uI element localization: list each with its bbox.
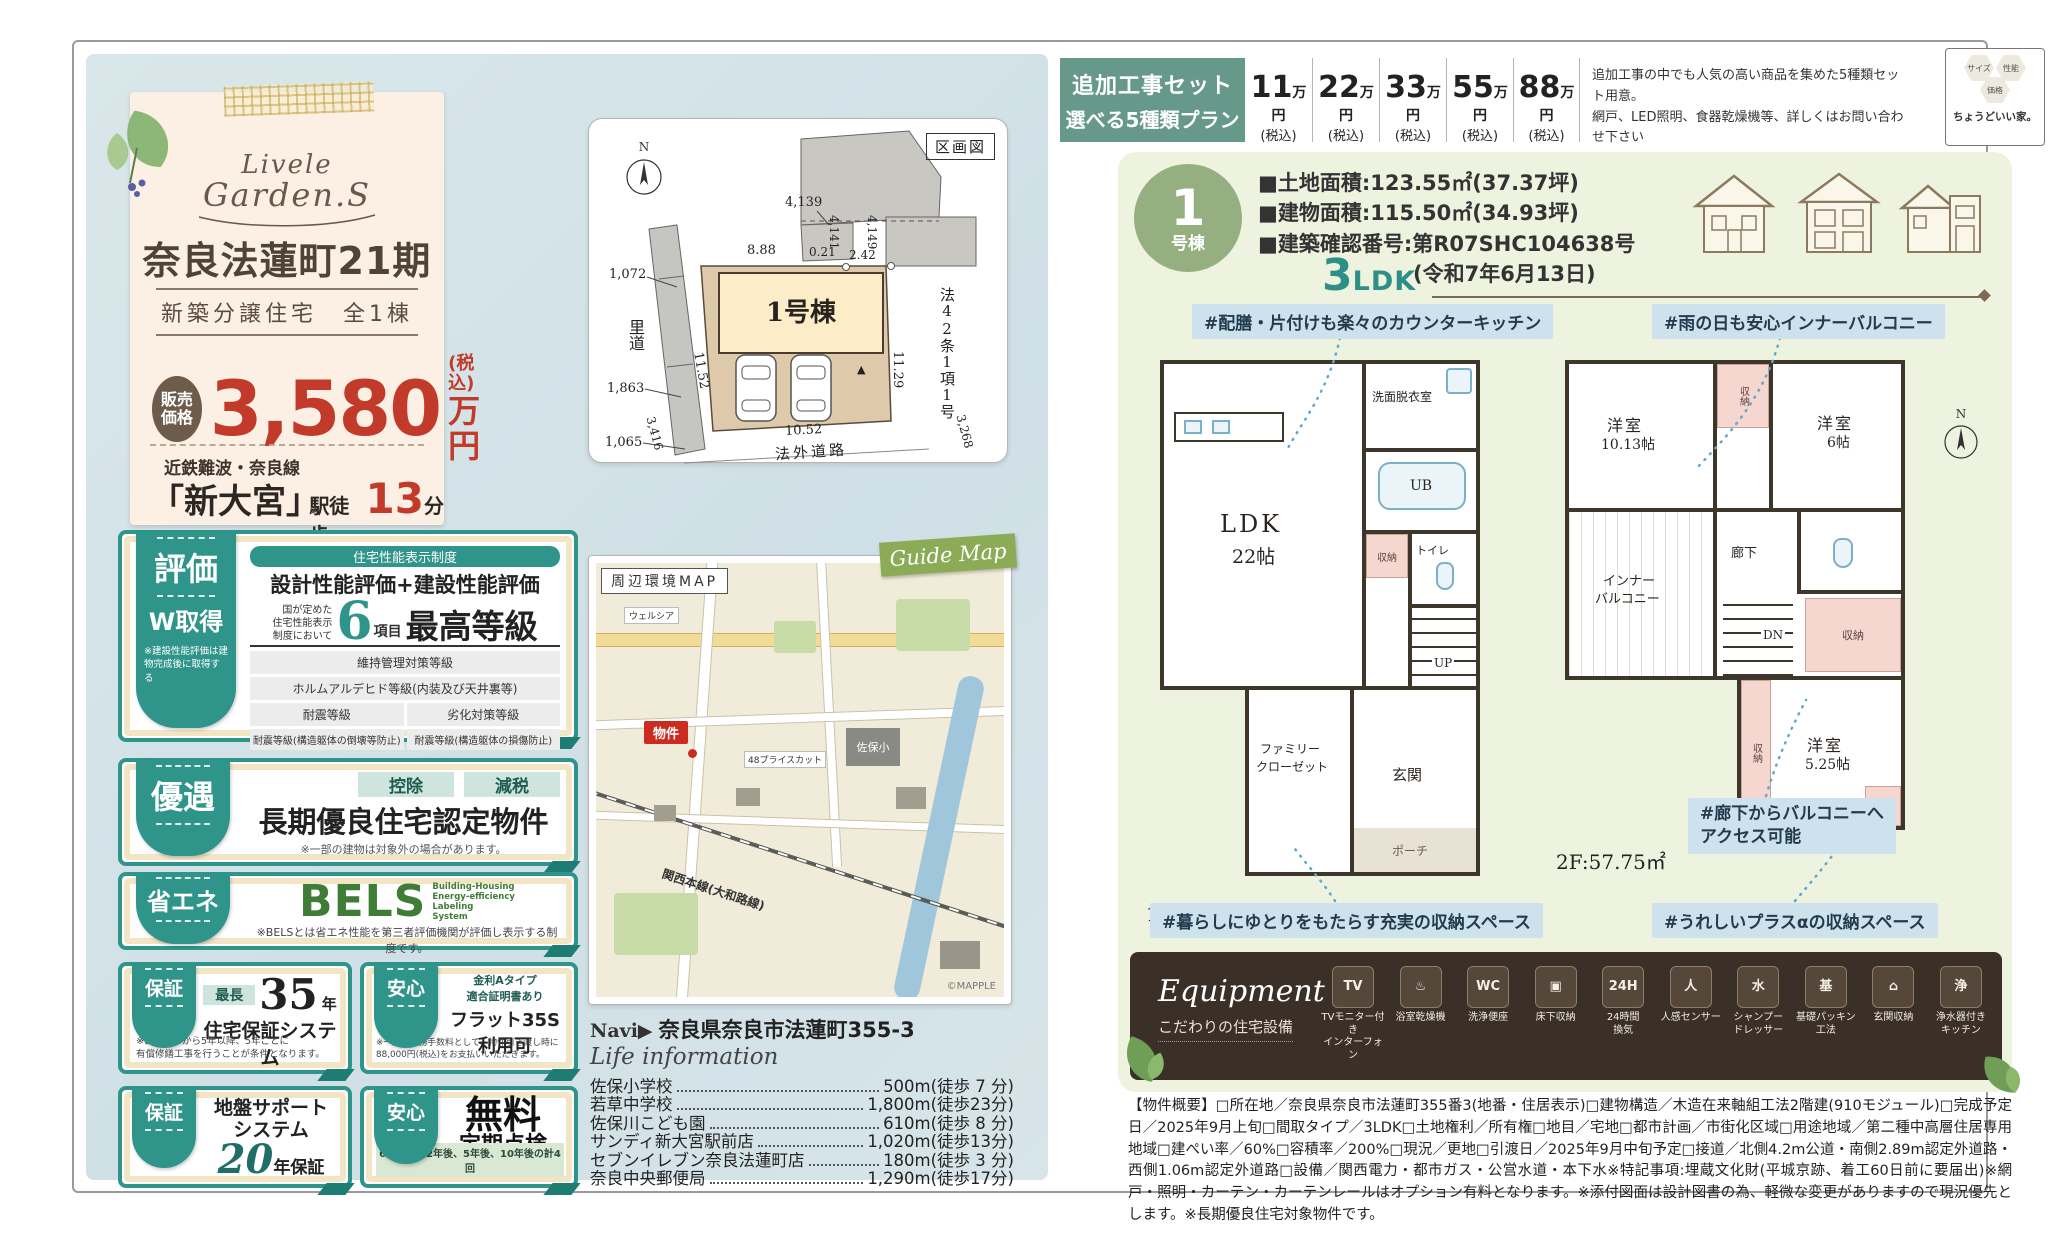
badge-ribbon-shouene: 省エネ <box>136 874 230 944</box>
unit-specs: ■土地面積:123.55㎡(37.37坪) ■建物面積:115.50㎡(34.9… <box>1258 168 1635 290</box>
ribbon-label: 省エネ <box>147 882 219 917</box>
dotted-leader <box>710 1127 880 1129</box>
water-purifier-icon: 浄 <box>1940 966 1982 1008</box>
leaf-decoration <box>1972 1046 2028 1102</box>
compass-icon-floorplan: N <box>1938 406 1984 466</box>
dim-1072: 1,072 <box>609 267 646 282</box>
life-name: 佐保川こども園 <box>590 1115 706 1133</box>
ribbon-label: 優遇 <box>151 772 215 818</box>
bath-dryer-icon: ♨ <box>1400 966 1442 1008</box>
tag-storage2: #うれしいプラスαの収納スペース <box>1652 903 1938 938</box>
perf-lead2: 住宅性能表示 <box>272 617 332 630</box>
jiban-suffix: 年保証 <box>273 1153 324 1178</box>
room-shuno: 収納 <box>1366 534 1408 578</box>
badge-card-yuuguu: 優遇 控除 減税 長期優良住宅認定物件 ※一部の建物は対象外の場合があります。 <box>118 758 578 866</box>
equipment-label: 基礎パッキン <box>1793 1012 1859 1025</box>
life-info-title: Life information <box>590 1044 778 1070</box>
sink-icon <box>1184 420 1202 434</box>
room-fcl-line2: クローゼット <box>1256 758 1328 775</box>
tag-hallway-line1: #廊下からバルコニーへ <box>1700 803 1884 826</box>
room-yo3: 洋室 <box>1807 732 1843 756</box>
car-icon <box>791 355 831 421</box>
life-info-row: 佐保小学校500m(徒歩 7 分) <box>590 1078 1014 1096</box>
perf-title: 設計性能評価+建設性能評価 <box>250 569 560 599</box>
equipment-label: TVモニター付き <box>1320 1012 1386 1037</box>
room-yo1-size: 10.13帖 <box>1601 434 1655 454</box>
spec-building-area: ■建物面積:115.50㎡(34.93坪) <box>1258 198 1635 228</box>
property-outline: 【物件概要】□所在地／奈良県奈良市法蓮町355番3(地番・住居表示)□建物構造／… <box>1128 1096 2012 1227</box>
bels-sub1: Building-Housing <box>432 882 515 892</box>
flat35s-pill2: 適合証明書あり <box>442 988 568 1004</box>
perf-cell3: 耐震等級(構造躯体の倒壊等防止) <box>250 729 404 750</box>
entrance-triangle: ▲ <box>857 363 865 376</box>
property-marker-dot <box>688 749 697 758</box>
equipment-label: シャンプー <box>1725 1012 1791 1025</box>
stairs-up-label: UP <box>1432 656 1454 670</box>
hoshou35-note2: 有償修繕工事を行うことが条件となります。 <box>136 1049 340 1062</box>
ventilation-icon: 24H <box>1602 966 1644 1008</box>
unit-number-circle: 1 号棟 <box>1134 164 1242 272</box>
area-2f: 2F:57.75㎡ <box>1556 846 1666 875</box>
jiban-num: 20 <box>218 1142 274 1178</box>
badge-card-flat35s: 安心 金利Aタイプ 適合証明書あり フラット35S利用可 ※一連の事務手数料とし… <box>360 962 578 1074</box>
yuuguu-content: 控除 減税 長期優良住宅認定物件 ※一部の建物は対象外の場合があります。 <box>247 772 560 857</box>
tag-hallway: #廊下からバルコニーへ アクセス可能 <box>1688 798 1896 854</box>
perf-header: 住宅性能表示制度 <box>250 546 560 567</box>
navi-address: 奈良県奈良市法蓮町355-3 <box>659 1014 915 1044</box>
perf-lead3: 制度において <box>272 630 332 643</box>
motion-sensor-icon: 人 <box>1670 966 1712 1008</box>
flyer-page: Livele Garden.S 奈良法蓮町21期 新築分譲住宅 全1棟 販売 価… <box>0 0 2056 1235</box>
ribbon-label: 保証 <box>145 1098 183 1125</box>
equipment-item: WC洗浄便座 <box>1455 966 1521 1062</box>
life-value: 500m(徒歩 7 分) <box>883 1078 1014 1096</box>
walk-suffix: 分 <box>424 490 444 519</box>
leaf-decoration <box>1112 1030 1172 1090</box>
addon-plan-line2: 選べる5種類プラン <box>1066 104 1240 133</box>
equipment-subtitle: こだわりの住宅設備 <box>1158 1016 1293 1042</box>
life-value: 1,020m(徒歩13分) <box>867 1133 1014 1151</box>
equipment-label: インターフォン <box>1320 1037 1386 1062</box>
life-value: 1,290m(徒歩17分) <box>867 1170 1014 1188</box>
dotted-leader <box>710 1182 864 1184</box>
dim-4141: 4,141 <box>827 215 841 249</box>
dotted-leader <box>677 1090 880 1092</box>
guide-map-canvas: 関西本線(大和路線) 佐保小 ウェルシア 48プライスカット 物件 ©MAPPL… <box>596 563 1004 997</box>
room-yo1: 洋室 <box>1607 412 1643 436</box>
floorplan-2f: 収納 洋室 10.13帖 洋室 6帖 インナー バルコニー 廊下 DN 収納 収… <box>1565 360 1905 830</box>
room-toilet: トイレ <box>1416 542 1449 558</box>
life-name: サンディ新大宮駅前店 <box>590 1133 754 1151</box>
ribbon-label: 評価 <box>154 544 218 590</box>
perf-big-suffix: 項目 <box>374 621 402 641</box>
dim-242: 2.42 <box>849 248 876 262</box>
ldk-num: 3 <box>1322 250 1353 301</box>
shampoo-dresser-icon: 水 <box>1737 966 1779 1008</box>
tape-decoration <box>224 81 375 116</box>
unit-layout: 3 LDK <box>1322 250 1416 301</box>
ldk-suffix: LDK <box>1353 266 1417 297</box>
map-credit: ©MAPPLE <box>947 981 996 992</box>
map-building <box>940 941 980 969</box>
building-label: 1号棟 <box>766 298 837 328</box>
closet-2f-mid: 収納 <box>1805 598 1901 672</box>
life-value: 1,800m(徒歩23分) <box>867 1096 1014 1114</box>
price-cell: 11万円 (税込) <box>1245 58 1312 142</box>
badge-ribbon-hoshou2: 保証 <box>132 1088 196 1168</box>
room-porch: ポーチ <box>1392 842 1428 859</box>
equipment-item: 人人感センサー <box>1658 966 1724 1062</box>
compass-n: N <box>639 140 650 154</box>
flat35s-note2: 88,000円(税込)をお支払いいただきます。 <box>376 1050 568 1062</box>
decor-line <box>1432 296 1984 298</box>
map-store-label: 48プライスカット <box>744 751 826 768</box>
room-ub: UB <box>1410 478 1432 494</box>
equipment-label: 浴室乾燥機 <box>1388 1012 1454 1025</box>
life-info-row: 佐保川こども園610m(徒歩 8 分) <box>590 1115 1014 1133</box>
guide-map-corner-label: 周辺環境MAP <box>601 568 728 594</box>
dim-1065: 1,065 <box>605 435 642 450</box>
price-amount: 11 <box>1251 70 1293 105</box>
price-tax: (税込) <box>1313 125 1379 144</box>
room-ldk-size: 22帖 <box>1232 542 1275 569</box>
life-info-row: サンディ新大宮駅前店1,020m(徒歩13分) <box>590 1133 1014 1151</box>
price-badge-line1: 販売 <box>161 391 193 409</box>
equipment-label: 浄水器付き <box>1928 1012 1994 1025</box>
dotted-leader <box>677 1108 864 1110</box>
room-senmen: 洗面脱衣室 <box>1372 388 1432 405</box>
badge-ribbon-hoshou: 保証 <box>132 964 196 1048</box>
life-info-row: セブンイレブン奈良法蓮町店180m(徒歩 3 分) <box>590 1152 1014 1170</box>
addon-price-row: 11万円 (税込) 22万円 (税込) 33万円 (税込) 55万円 (税込) … <box>1245 58 1580 142</box>
floorplan-1f: 洗面脱衣室 UB 収納 トイレ UP LDK 22帖 ファミリー クローゼット … <box>1160 360 1480 880</box>
stove-icon <box>1212 420 1230 434</box>
equipment-label: キッチン <box>1928 1025 1994 1038</box>
compass-n2: N <box>1956 407 1967 421</box>
hoshou35-num: 35 <box>259 974 317 1016</box>
addon-plan-line1: 追加工事セット <box>1072 68 1233 100</box>
room-ldk: LDK <box>1220 510 1282 538</box>
price-value: 3,580 <box>210 371 440 447</box>
walk-minutes: 13 <box>366 474 424 523</box>
jiban-content: 地盤サポート システム 20 年保証 <box>202 1098 340 1178</box>
toilet-icon-2f <box>1833 538 1853 568</box>
car-icon <box>736 355 776 421</box>
room-inner-line2: バルコニー <box>1595 588 1660 607</box>
badge-card-bels: 省エネ BELS Building-Housing Energy-efficie… <box>118 872 578 950</box>
equipment-item: 水シャンプードレッサー <box>1725 966 1791 1062</box>
house-illustration <box>1690 168 1778 260</box>
property-subtitle: 新築分譲住宅 全1棟 <box>156 288 418 336</box>
dotted-leader <box>758 1145 863 1147</box>
equipment-label: ドレッサー <box>1725 1025 1791 1038</box>
dim-1129: 11.29 <box>890 351 905 388</box>
leaf-decoration <box>92 88 212 208</box>
equipment-item: ⌂玄関収納 <box>1860 966 1926 1062</box>
ribbon-note: ※建設性能評価は建物完成後に取得する <box>136 637 236 685</box>
compass-icon <box>627 160 661 194</box>
equipment-label: 工法 <box>1793 1025 1859 1038</box>
life-name: 佐保小学校 <box>590 1078 673 1096</box>
bels-logo: BELS <box>299 880 426 924</box>
brand-box: サイズ 性能 価格 ちょうどいい家。 <box>1945 48 2045 146</box>
pill-saichou: 最長 <box>203 985 255 1005</box>
brand-tagline: ちょうどいい家。 <box>1946 109 2044 124</box>
ribbon-sub: W取得 <box>149 602 223 637</box>
equipment-item: ▣床下収納 <box>1523 966 1589 1062</box>
equipment-item: 24H24時間換気 <box>1590 966 1656 1062</box>
map-building <box>736 788 760 806</box>
guide-map-card: 関西本線(大和路線) 佐保小 ウェルシア 48プライスカット 物件 ©MAPPL… <box>588 555 1012 1005</box>
equipment-item: ♨浴室乾燥機 <box>1388 966 1454 1062</box>
tag-kitchen: #配膳・片付けも楽々のカウンターキッチン <box>1192 304 1553 339</box>
badge-card-hyouka: 評価 W取得 ※建設性能評価は建物完成後に取得する 住宅性能表示制度 設計性能評… <box>118 530 578 742</box>
tag-balcony: #雨の日も安心インナーバルコニー <box>1652 304 1945 339</box>
property-title: 奈良法蓮町21期 <box>130 230 444 285</box>
pill-koujo: 控除 <box>358 772 454 797</box>
equipment-label: 人感センサー <box>1658 1012 1724 1025</box>
map-building <box>654 805 676 821</box>
bels-sub3: Labeling <box>432 902 515 912</box>
price-badge-line2: 価格 <box>161 409 193 427</box>
perf-lead1: 国が定めた <box>272 604 332 617</box>
floor-storage-icon: ▣ <box>1535 966 1577 1008</box>
card-fold <box>317 1183 354 1195</box>
addon-note: 追加工事の中でも人気の高い商品を集めた5種類セット用意。 網戸、LED照明、食器… <box>1592 66 1910 149</box>
price-cell: 88万円 (税込) <box>1513 58 1580 142</box>
bels-sub4: System <box>432 912 515 922</box>
equipment-item: 基基礎パッキン工法 <box>1793 966 1859 1062</box>
addon-note-line2: 網戸、LED照明、食器乾燥機等、詳しくはお問い合わせ下さい <box>1592 108 1910 150</box>
spec-land-area: ■土地面積:123.55㎡(37.37坪) <box>1258 168 1635 198</box>
foundation-packing-icon: 基 <box>1805 966 1847 1008</box>
bels-note: ※BELSとは省エネ性能を第三者評価機関が評価し表示する制度です。 <box>252 924 562 956</box>
equipment-label: 24時間 <box>1590 1012 1656 1025</box>
life-name: セブンイレブン奈良法蓮町店 <box>590 1152 805 1170</box>
dim-1863: 1,863 <box>607 381 644 396</box>
map-green-area <box>774 621 816 653</box>
yuuguu-note: ※一部の建物は対象外の場合があります。 <box>247 841 560 857</box>
bels-content: BELS Building-Housing Energy-efficiency … <box>252 880 562 956</box>
map-green-area <box>614 893 698 955</box>
perf-cell1: 耐震等級 <box>250 703 404 726</box>
washer-icon <box>1446 368 1472 394</box>
room-rouka: 廊下 <box>1731 542 1757 561</box>
price-tax: (税込) <box>1447 125 1513 144</box>
dim-4149: 4,149 <box>865 215 879 249</box>
hoshou35-year: 年 <box>322 993 337 1014</box>
price-cell: 33万円 (税込) <box>1379 58 1446 142</box>
room-yo3-size: 5.25帖 <box>1805 754 1850 774</box>
property-marker: 物件 <box>644 721 688 744</box>
badge-card-hoshou35: 保証 最長 35 年 住宅保証システム ※お引渡しから5年以降、5年ごとに 有償… <box>118 962 352 1074</box>
bels-sub2: Energy-efficiency <box>432 892 515 902</box>
map-building <box>896 787 926 809</box>
life-info-row: 若草中学校1,800m(徒歩23分) <box>590 1096 1014 1114</box>
perf-cell4: 耐震等級(構造躯体の損傷防止) <box>407 729 561 750</box>
map-school-building: 佐保小 <box>846 728 900 766</box>
badge-card-jiban: 保証 地盤サポート システム 20 年保証 <box>118 1086 352 1188</box>
equipment-label: 床下収納 <box>1523 1012 1589 1025</box>
dim-1052: 10.52 <box>785 422 823 439</box>
navi-row: Navi▶ 奈良県奈良市法蓮町355-3 <box>590 1014 915 1044</box>
addon-plan-box: 追加工事セット 選べる5種類プラン <box>1060 58 1245 142</box>
dim-888: 8.88 <box>747 243 776 258</box>
card-fold <box>543 1183 580 1195</box>
entrance-storage-icon: ⌂ <box>1872 966 1914 1008</box>
kitchen-counter <box>1174 412 1284 442</box>
price-cell: 22万円 (税込) <box>1312 58 1379 142</box>
neighbor-lot-upper <box>801 131 941 225</box>
addon-note-line1: 追加工事の中でも人気の高い商品を集めた5種類セット用意。 <box>1592 66 1910 108</box>
price-cell: 55万円 (税込) <box>1446 58 1513 142</box>
brand-hexagons-row2: 価格 <box>1946 77 2044 103</box>
equipment-label: 換気 <box>1590 1025 1656 1038</box>
equipment-items: TVTVモニター付きインターフォン ♨浴室乾燥機 WC洗浄便座 ▣床下収納 24… <box>1320 966 1994 1062</box>
stairs-1f <box>1412 608 1480 690</box>
station-name: 「新大宮」 <box>150 474 309 523</box>
price-badge: 販売 価格 <box>152 376 202 442</box>
tag-hallway-line2: アクセス可能 <box>1700 826 1884 849</box>
map-welcia-label: ウェルシア <box>624 607 679 624</box>
life-value: 610m(徒歩 8 分) <box>883 1115 1014 1133</box>
equipment-label: 玄関収納 <box>1860 1012 1926 1025</box>
equipment-banner: Equipment こだわりの住宅設備 TVTVモニター付きインターフォン ♨浴… <box>1130 952 2002 1080</box>
room-yo2: 洋室 <box>1817 410 1853 434</box>
room-genkan: 玄関 <box>1392 764 1422 785</box>
badge-card-tenken: 安心 無料 定期点検 6ヶ月後、2年後、5年後、10年後の計4回 <box>360 1086 578 1188</box>
plot-map-title: 区画図 <box>926 133 995 160</box>
equipment-title: Equipment <box>1158 974 1325 1009</box>
price-amount: 88 <box>1519 70 1561 105</box>
ribbon-label: 安心 <box>387 1098 425 1125</box>
stairs-dn-label: DN <box>1761 628 1785 642</box>
perf-table: 維持管理対策等級 ホルムアルデヒド等級(内装及び天井裏等) 耐震等級 劣化対策等… <box>250 651 560 750</box>
law-label: 法42条1項1号 <box>937 287 958 419</box>
dotted-leader <box>809 1164 880 1166</box>
price-unit: 万円 <box>448 394 496 464</box>
badge-ribbon-anshin2: 安心 <box>374 1088 438 1164</box>
closet-2f-top: 収納 <box>1717 364 1769 428</box>
perf-cell2: 劣化対策等級 <box>407 703 561 726</box>
dim-4139: 4,139 <box>785 195 822 210</box>
plot-map-card: N 1号棟 区画図 4,139 8.88 0.21 2.42 4,141 4,1… <box>588 118 1008 463</box>
price-amount: 22 <box>1318 70 1360 105</box>
room-inner-line1: インナー <box>1603 570 1655 589</box>
house-illustration <box>1795 168 1883 260</box>
price-tax: (税込) <box>1514 125 1579 144</box>
intercom-icon: TV <box>1332 966 1374 1008</box>
perf-row1: 維持管理対策等級 <box>250 651 560 674</box>
spec-confirmation-date: (令和7年6月13日) <box>1258 259 1635 289</box>
perf-highlight: 国が定めた 住宅性能表示 制度において 6 項目 最高等級 <box>250 601 560 647</box>
equipment-item: TVTVモニター付きインターフォン <box>1320 966 1386 1062</box>
price-tax: (税込) <box>448 354 496 394</box>
yuuguu-title: 長期優良住宅認定物件 <box>247 799 560 841</box>
divider <box>150 444 424 446</box>
badge-ribbon-hyouka: 評価 W取得 ※建設性能評価は建物完成後に取得する <box>136 532 236 728</box>
toilet-icon <box>1436 562 1454 590</box>
price-unit-block: (税込) 万円 <box>448 354 496 464</box>
spec-confirmation-number: ■建築確認番号:第R07SHC104638号 <box>1258 229 1635 259</box>
life-info-row: 奈良中央郵便局1,290m(徒歩17分) <box>590 1170 1014 1188</box>
navi-label: Navi▶ <box>590 1020 653 1042</box>
unit-suffix: 号棟 <box>1171 236 1205 253</box>
house-illustration <box>1898 172 1986 260</box>
perf-big-num: 6 <box>336 601 372 643</box>
life-name: 奈良中央郵便局 <box>590 1170 706 1188</box>
flat35s-pill1: 金利Aタイプ <box>442 972 568 988</box>
price-amount: 33 <box>1385 70 1427 105</box>
life-value: 180m(徒歩 3 分) <box>883 1152 1014 1170</box>
price-tax: (税込) <box>1245 125 1312 144</box>
jiban-title1: 地盤サポート <box>202 1098 340 1120</box>
ribbon-label: 保証 <box>145 974 183 1001</box>
unit-number: 1 <box>1171 183 1206 233</box>
room-fcl-line1: ファミリー <box>1260 740 1320 757</box>
badge-ribbon-yuuguu: 優遇 <box>136 760 230 856</box>
price-amount: 55 <box>1452 70 1494 105</box>
perf-big-text: 最高等級 <box>406 611 538 642</box>
tenken-title1: 無料 <box>465 1093 541 1137</box>
life-info-list: 佐保小学校500m(徒歩 7 分) 若草中学校1,800m(徒歩23分) 佐保川… <box>590 1078 1014 1189</box>
washlet-icon: WC <box>1467 966 1509 1008</box>
ribbon-label: 安心 <box>387 974 425 1001</box>
perf-row2: ホルムアルデヒド等級(内装及び天井裏等) <box>250 677 560 700</box>
tag-storage1: #暮らしにゆとりをもたらす充実の収納スペース <box>1150 903 1543 938</box>
neighbor-lot-right <box>886 217 976 266</box>
pill-genzei: 減税 <box>464 772 560 797</box>
price-row: 販売 価格 3,580 (税込) 万円 <box>152 354 496 464</box>
equipment-label: 洗浄便座 <box>1455 1012 1521 1025</box>
map-green-area <box>896 599 970 651</box>
room-yo2-size: 6帖 <box>1827 432 1850 452</box>
logo-swirl <box>197 213 377 229</box>
life-name: 若草中学校 <box>590 1096 673 1114</box>
satodou-label: 里道 <box>623 319 647 351</box>
price-tax: (税込) <box>1380 125 1446 144</box>
badge-ribbon-anshin: 安心 <box>374 964 438 1048</box>
performance-panel: 住宅性能表示制度 設計性能評価+建設性能評価 国が定めた 住宅性能表示 制度にお… <box>250 546 560 750</box>
